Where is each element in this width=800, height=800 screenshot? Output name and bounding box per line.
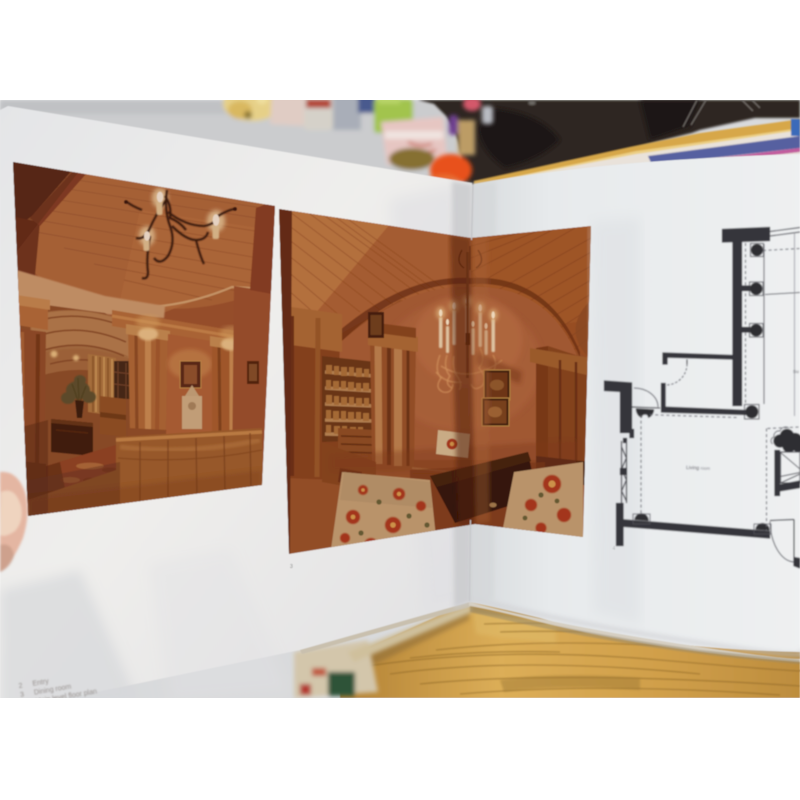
svg-text:3: 3 <box>290 564 293 570</box>
svg-text:Su: Su <box>793 369 799 374</box>
